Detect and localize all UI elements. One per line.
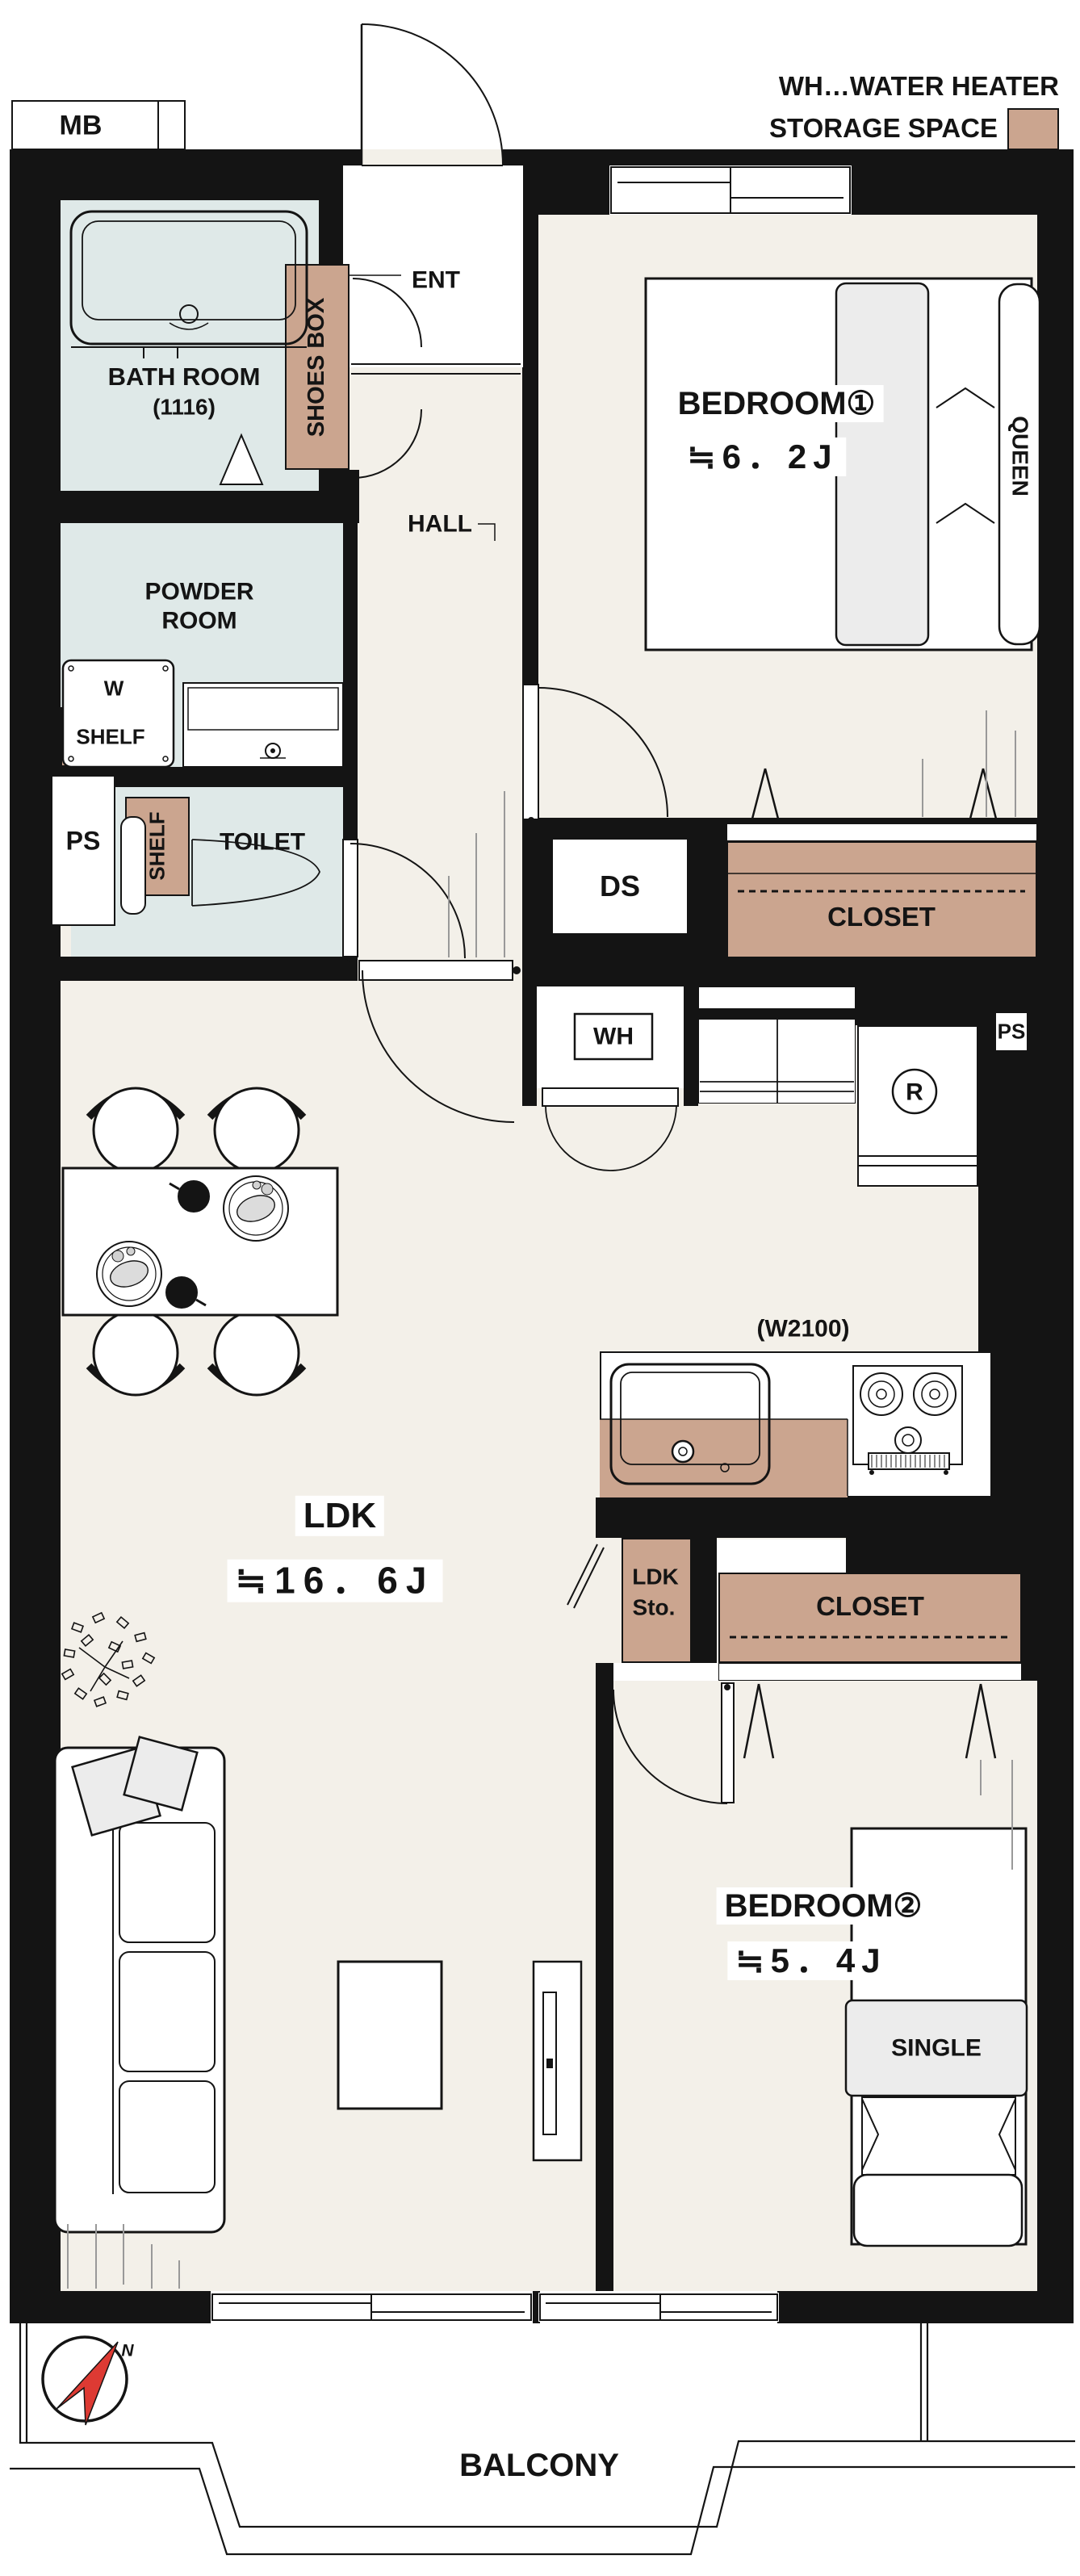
- compass: [43, 2337, 127, 2425]
- closet2-details: [730, 1637, 1011, 1758]
- bathtub: [71, 212, 307, 484]
- label-entrance: ENT: [412, 267, 460, 294]
- label-closet1: CLOSET: [827, 903, 936, 932]
- cupboard-details: [700, 1019, 854, 1104]
- label-bedroom2: BEDROOM②: [717, 1887, 931, 1925]
- label-ps-right: PS: [998, 1020, 1026, 1044]
- bath-door: [220, 435, 262, 484]
- label-bedroom2-size: ≒5．4J: [727, 1941, 894, 1980]
- label-toilet-shelf: SHELF: [146, 811, 170, 880]
- sofa: [55, 1737, 224, 2232]
- coffee-table: [338, 1962, 442, 2109]
- tv-board: [534, 1962, 581, 2160]
- entrance-step: [350, 275, 521, 541]
- label-ldk-sto-1: LDK: [632, 1565, 679, 1590]
- label-bathroom-size: (1116): [153, 396, 216, 421]
- kitchen-sink: [600, 1364, 848, 1496]
- label-toilet: TOILET: [220, 829, 305, 856]
- label-powder-room-1: POWDER: [145, 579, 254, 605]
- shoes-box-doors: [353, 279, 421, 478]
- balcony-outline: [10, 2323, 1075, 2554]
- label-bedroom1-size: ≒6．2J: [679, 438, 846, 476]
- stove: [853, 1366, 962, 1475]
- plant: [62, 1613, 154, 1707]
- bedroom2-door: [613, 1683, 734, 1803]
- label-shoes-box: SHOES BOX: [304, 298, 330, 437]
- hall-ldk-door: [359, 961, 521, 1122]
- bedroom1-door: [523, 685, 668, 823]
- label-compass-north: N: [121, 2341, 133, 2360]
- label-single: SINGLE: [891, 2035, 982, 2062]
- label-ldk: LDK: [295, 1496, 384, 1536]
- label-ldk-sto-2: Sto.: [633, 1596, 676, 1621]
- label-balcony: BALCONY: [459, 2448, 619, 2483]
- floor-plan: WH…WATER HEATER STORAGE SPACE MB BATH RO…: [0, 0, 1080, 2576]
- label-washer: W: [104, 677, 124, 701]
- label-queen: QUEEN: [1007, 416, 1032, 496]
- legend-water-heater: WH…WATER HEATER: [779, 71, 1059, 102]
- vanity: [183, 683, 343, 767]
- toilet-door: [343, 840, 465, 962]
- label-bathroom: BATH ROOM: [108, 363, 261, 391]
- label-powder-room-2: ROOM: [161, 608, 237, 635]
- label-bedroom1: BEDROOM①: [670, 385, 884, 422]
- label-ldk-size: ≒16．6J: [228, 1560, 443, 1602]
- label-wh: WH: [593, 1024, 634, 1050]
- label-powder-shelf: SHELF: [76, 726, 144, 749]
- balcony-window-frames: [212, 2294, 777, 2320]
- closet1-details: [728, 769, 1036, 891]
- entrance-door: [362, 24, 503, 165]
- label-closet2: CLOSET: [816, 1592, 924, 1621]
- label-ds: DS: [600, 870, 640, 903]
- label-meter-box: MB: [60, 111, 103, 140]
- label-ps-left: PS: [66, 827, 101, 855]
- label-refrigerator: R: [906, 1079, 923, 1106]
- legend-storage: STORAGE SPACE: [769, 113, 998, 144]
- label-hall: HALL: [408, 511, 472, 538]
- bedroom1-window-frame: [611, 167, 850, 213]
- dining-set: [63, 1088, 337, 1395]
- label-kitchen-width: (W2100): [756, 1316, 849, 1342]
- ldk-storage-door: [567, 1544, 604, 1608]
